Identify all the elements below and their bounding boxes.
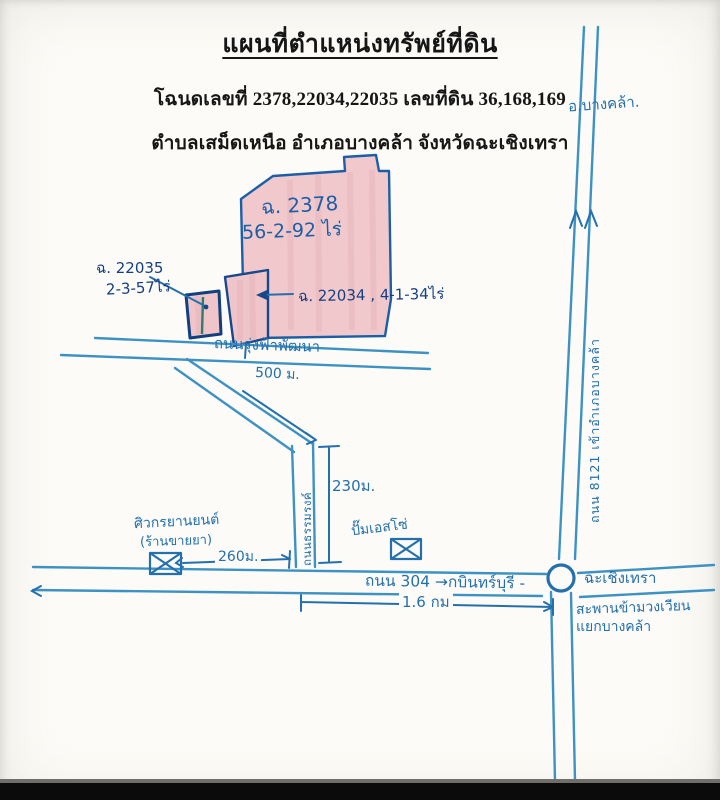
shop-note-label: (ร้านขายยา) (140, 529, 213, 553)
road-south-line-right (571, 593, 575, 781)
map-drawing (0, 0, 720, 800)
bridge-label-line2: แยกบางคล้า (576, 616, 651, 638)
plot-22034-label: ฉ. 22034 , 4-1-34ไร่ (298, 282, 445, 309)
road-lines (33, 27, 714, 781)
dimension-500m-arrow (243, 391, 316, 444)
leader-22035-dot (204, 305, 209, 310)
distance-500m-label: 500 ม. (254, 362, 300, 386)
roundabout-circle (548, 565, 574, 591)
road-south-line-left (551, 592, 555, 781)
gas-station-landmark-icon (391, 539, 421, 559)
scanned-land-map-page: แผนที่ตำแหน่งทรัพย์ที่ดิน โฉนดเลขที่ 237… (0, 0, 720, 800)
survey-green-mark (202, 297, 203, 334)
road-side-label: ถนนธรรมรงค์ (299, 492, 317, 566)
distance-1-6km-label: 1.6 กม (399, 590, 453, 614)
dimension-230m-line (319, 446, 341, 563)
distance-230m-label: 230ม. (332, 474, 375, 498)
road-rungfa-label: ถนนรุ่งฟ้าพัฒนา (214, 331, 321, 359)
district-direction-label: อ.บางคล้า. (567, 90, 640, 119)
distance-260m-label: 260ม. (215, 546, 261, 568)
north-arrowhead-right (585, 211, 597, 228)
road-8121-label: ถนน 8121 เข้าอำเภอบางคล้า (585, 338, 605, 523)
chachoengsao-direction-label: ฉะเชิงเทรา (584, 566, 656, 590)
scan-edge-bar (0, 783, 720, 800)
plot-22035-area-label: 2-3-57ไร่ (105, 274, 171, 301)
plot-2378-area-label: 56-2-92 ไร่ (242, 214, 343, 247)
road-side-vert-left (292, 446, 296, 567)
